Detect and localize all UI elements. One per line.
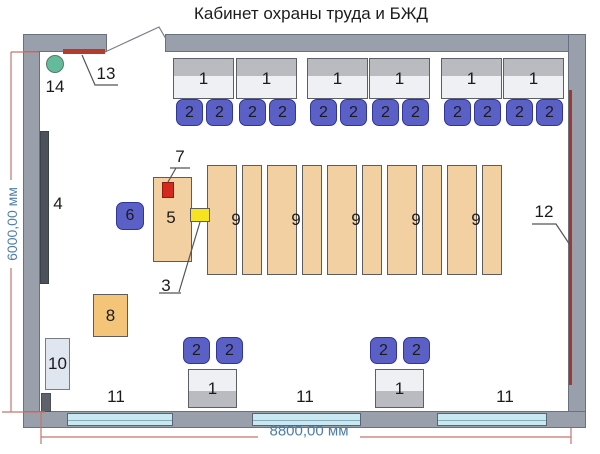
window-3 (437, 413, 547, 426)
student-table: 1 (236, 58, 297, 99)
red-desk-item (162, 182, 174, 198)
door-leaf (63, 49, 105, 54)
callout-14: 14 (46, 77, 65, 97)
student-chair: 2 (474, 99, 501, 126)
teacher-chair: 6 (116, 202, 144, 230)
yellow-desk-item (190, 208, 210, 222)
student-table: 1 (173, 58, 234, 99)
student-chair: 2 (310, 99, 337, 126)
green-round-fixture (46, 55, 64, 73)
chair-label: 2 (381, 104, 390, 122)
chair-label: 2 (225, 342, 234, 360)
table-label: 1 (333, 69, 342, 89)
student-chair: 2 (239, 99, 266, 126)
student-chair: 2 (372, 99, 399, 126)
lecture-table-label: 9 (461, 165, 491, 275)
chair-label: 2 (515, 104, 524, 122)
student-chair: 2 (269, 99, 296, 126)
chair-label: 2 (545, 104, 554, 122)
student-chair: 2 (506, 99, 533, 126)
lecture-table-label: 9 (281, 165, 311, 275)
student-chair: 2 (370, 337, 397, 364)
lecture-table: 9 (327, 165, 382, 275)
wall-pilaster (41, 393, 51, 412)
student-table: 1 (503, 58, 564, 99)
table-label: 1 (199, 69, 208, 89)
student-chair: 2 (403, 337, 430, 364)
plan-title: Кабинет охраны труда и БЖД (194, 4, 428, 24)
lecture-table: 9 (387, 165, 442, 275)
student-chair: 2 (176, 99, 203, 126)
callout-4: 4 (53, 194, 62, 214)
table-label: 1 (208, 379, 217, 399)
callout-3: 3 (161, 276, 170, 296)
stand: 10 (45, 338, 70, 390)
chair-label: 2 (411, 104, 420, 122)
callout-11: 11 (107, 387, 125, 407)
lecture-table-label: 9 (221, 165, 251, 275)
chair-label: 2 (215, 104, 224, 122)
floor-plan: Кабинет охраны труда и БЖД 1 1 1 1 1 1 2… (0, 0, 600, 454)
lecture-table: 9 (267, 165, 322, 275)
window-1 (67, 413, 173, 426)
dimension-height: 6000,00 мм (4, 187, 20, 261)
chair-label: 2 (483, 104, 492, 122)
leader-12 (532, 224, 570, 245)
student-table: 1 (441, 58, 502, 99)
chair-label: 2 (379, 342, 388, 360)
wall-top-right (165, 34, 586, 52)
table-label: 1 (467, 69, 476, 89)
chair-label: 6 (126, 207, 135, 225)
chair-label: 2 (453, 104, 462, 122)
table-label: 1 (395, 69, 404, 89)
lecture-table-label: 9 (401, 165, 431, 275)
lecture-table-label: 9 (341, 165, 371, 275)
stand-label: 10 (48, 354, 67, 374)
lecture-table: 9 (207, 165, 262, 275)
student-table: 1 (188, 369, 237, 408)
student-chair: 2 (402, 99, 429, 126)
student-chair: 2 (206, 99, 233, 126)
callout-12: 12 (535, 202, 554, 222)
table-label: 1 (395, 379, 404, 399)
callout-11: 11 (296, 387, 314, 407)
red-wall-strip (569, 90, 572, 385)
chair-label: 2 (319, 104, 328, 122)
student-table: 1 (375, 369, 424, 408)
cabinet-label: 8 (106, 306, 115, 326)
chair-label: 2 (278, 104, 287, 122)
callout-11: 11 (496, 387, 514, 407)
callout-13: 13 (97, 64, 116, 84)
chair-label: 2 (185, 104, 194, 122)
wall-left (23, 34, 40, 428)
chair-label: 2 (412, 342, 421, 360)
dimension-width: 8800,00 мм (269, 423, 348, 440)
chair-label: 2 (349, 104, 358, 122)
student-chair: 2 (216, 337, 243, 364)
table-label: 1 (529, 69, 538, 89)
student-chair: 2 (536, 99, 563, 126)
student-table: 1 (307, 58, 368, 99)
table-label: 1 (262, 69, 271, 89)
cabinet: 8 (93, 294, 128, 337)
callout-5: 5 (166, 208, 175, 228)
chair-label: 2 (192, 342, 201, 360)
student-chair: 2 (183, 337, 210, 364)
student-table: 1 (369, 58, 430, 99)
student-chair: 2 (444, 99, 471, 126)
student-chair: 2 (340, 99, 367, 126)
wall-board (40, 131, 49, 284)
callout-7: 7 (175, 147, 184, 167)
lecture-table: 9 (447, 165, 502, 275)
chair-label: 2 (248, 104, 257, 122)
door-swing-line (105, 27, 166, 52)
